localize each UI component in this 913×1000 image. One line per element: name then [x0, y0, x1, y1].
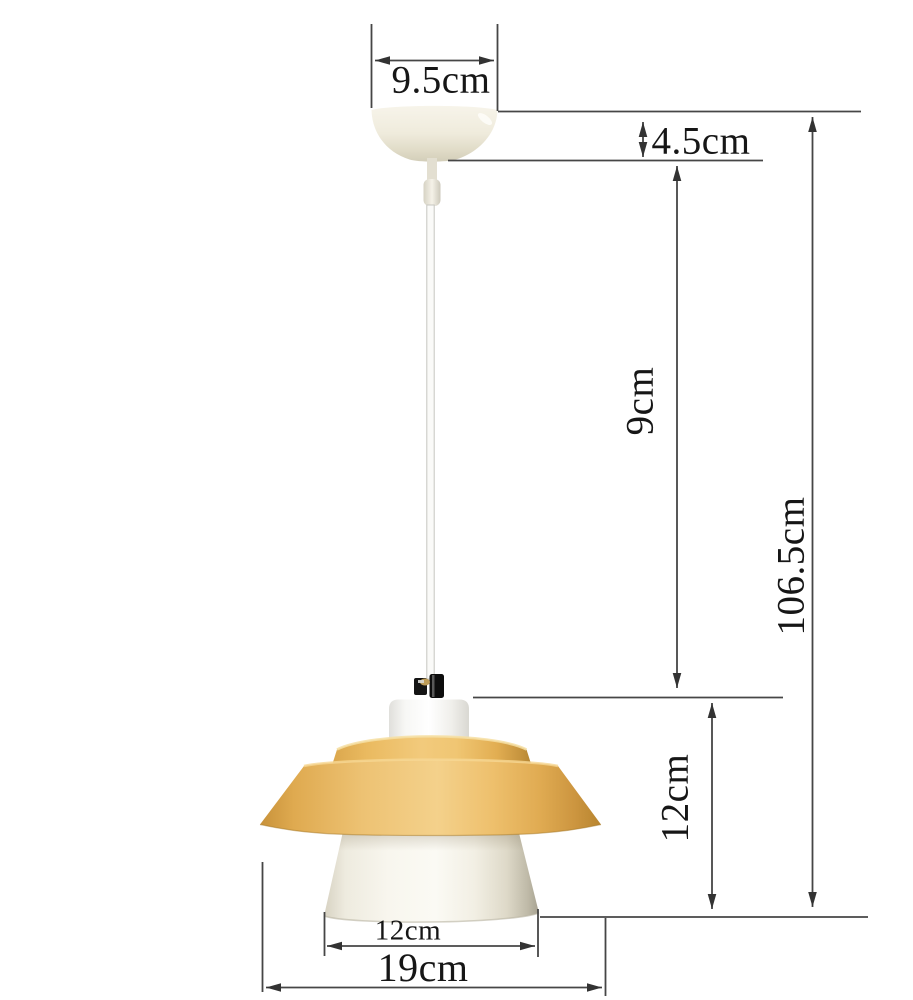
dim-overall-height: [540, 117, 868, 917]
suspension-cord: [427, 205, 434, 679]
label-canopy-height: 4.5cm: [652, 122, 751, 161]
cord-connector-cap: [424, 179, 441, 206]
label-canopy-diameter: 9.5cm: [392, 61, 491, 100]
pendant-lamp: [260, 106, 601, 922]
label-shade-height: 12cm: [656, 754, 695, 843]
label-overall-height: 106.5cm: [772, 497, 811, 636]
label-shade-diameter: 19cm: [378, 948, 469, 988]
wood-shade-main-cone: [260, 760, 601, 836]
product-dimension-diagram: 9.5cm 4.5cm 9cm 106.5cm 12cm 12cm 19cm: [0, 0, 913, 1000]
label-upper-cord-length: 9cm: [621, 367, 660, 436]
label-opening-diameter: 12cm: [375, 917, 441, 946]
inner-shade-top-shadow: [324, 827, 539, 922]
